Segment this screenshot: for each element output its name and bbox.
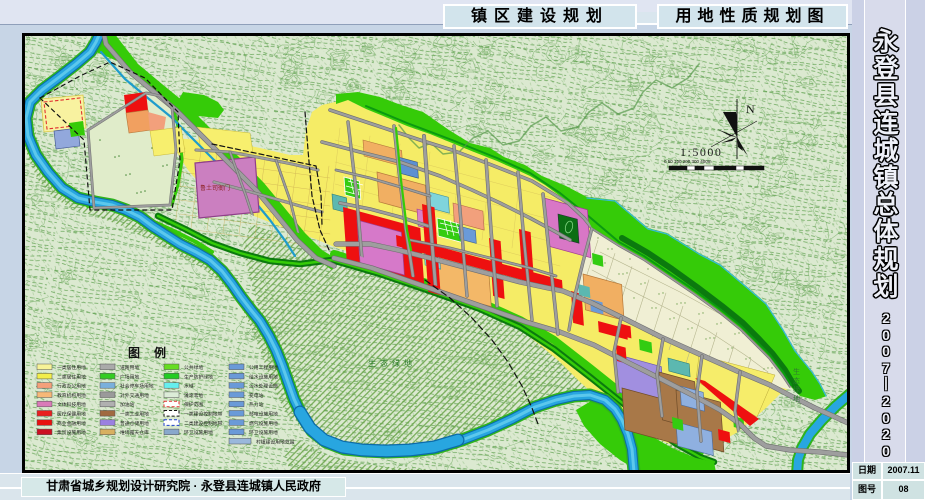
svg-text:水域: 水域 <box>184 383 194 390</box>
svg-text:教育机构用地: 教育机构用地 <box>57 392 86 399</box>
svg-text:热力站: 热力站 <box>249 401 264 408</box>
svg-text:0 50 100 200 300: 0 50 100 200 300 400m <box>664 159 712 164</box>
svg-text:邮电设施用地: 邮电设施用地 <box>249 411 278 418</box>
svg-text:环卫设施用地: 环卫设施用地 <box>249 429 278 436</box>
svg-text:鲁土司衙门: 鲁土司衙门 <box>200 184 230 192</box>
svg-text:堆场露天仓库: 堆场露天仓库 <box>120 429 149 436</box>
svg-text:商业金融用地: 商业金融用地 <box>57 420 86 427</box>
svg-text:生态绿地: 生态绿地 <box>793 367 801 404</box>
svg-text:普通仓储用地: 普通仓储用地 <box>120 420 149 427</box>
svg-text:污水处理设施: 污水处理设施 <box>249 383 278 390</box>
svg-text:生态绿地: 生态绿地 <box>368 358 416 368</box>
svg-text:文体科技用地: 文体科技用地 <box>57 401 86 408</box>
svg-text:滩涂苇地: 滩涂苇地 <box>184 392 203 399</box>
svg-text:道路用地: 道路用地 <box>120 364 139 371</box>
svg-text:生产防护绿地: 生产防护绿地 <box>184 373 213 380</box>
svg-text:一类居住用地: 一类居住用地 <box>57 364 86 371</box>
svg-text:加油站: 加油站 <box>120 401 135 408</box>
svg-text:燃气设施用地: 燃气设施用地 <box>249 420 278 427</box>
svg-text:给水设施用地: 给水设施用地 <box>249 373 278 380</box>
svg-text:对外交通用地: 对外交通用地 <box>120 392 149 399</box>
svg-text:变电站: 变电站 <box>249 392 264 399</box>
svg-text:村镇建设用地范围: 村镇建设用地范围 <box>256 438 295 445</box>
svg-text:一类建设控制地带: 一类建设控制地带 <box>184 411 223 418</box>
svg-text:保护范围: 保护范围 <box>184 401 203 408</box>
svg-text:N: N <box>746 102 755 116</box>
svg-text:公用工程用地: 公用工程用地 <box>249 364 278 371</box>
svg-text:社会停车场用地: 社会停车场用地 <box>120 383 154 390</box>
svg-text:广场用地: 广场用地 <box>120 373 139 380</box>
svg-text:环卫设施用地: 环卫设施用地 <box>184 429 213 436</box>
svg-text:公共绿地: 公共绿地 <box>184 364 203 371</box>
svg-text:集贸设施用地: 集贸设施用地 <box>57 429 86 436</box>
svg-text:医疗保健用地: 医疗保健用地 <box>57 411 86 418</box>
svg-text:二类居住用地: 二类居住用地 <box>57 373 86 380</box>
svg-text:一类工业用地: 一类工业用地 <box>120 411 149 418</box>
svg-text:行政办公用地: 行政办公用地 <box>57 383 86 390</box>
svg-text:二类建设控制地带: 二类建设控制地带 <box>184 420 223 427</box>
svg-text:1:5000: 1:5000 <box>680 145 722 159</box>
svg-text:图例: 图例 <box>128 345 180 360</box>
